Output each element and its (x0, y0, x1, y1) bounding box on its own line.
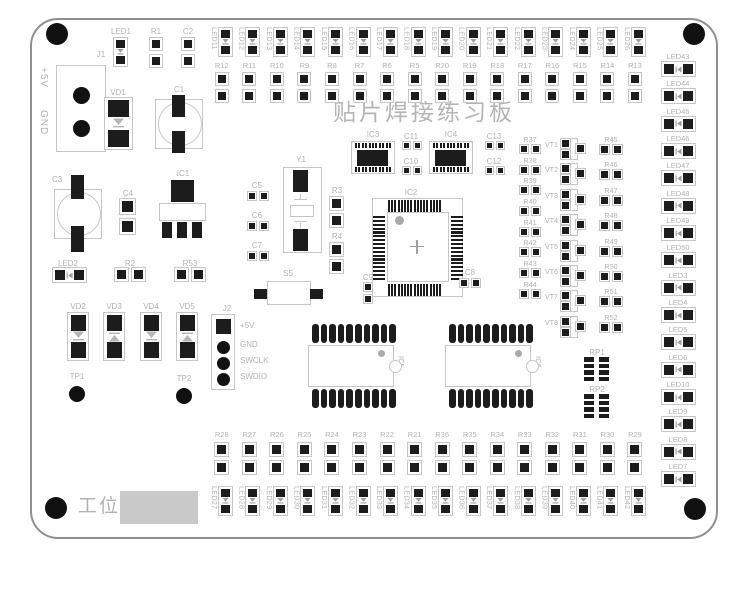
smd-pad (355, 445, 364, 454)
diode-cathode-icon (387, 498, 394, 504)
smd-pad (577, 272, 584, 279)
smd-pad (466, 92, 474, 100)
soic-pin (362, 167, 364, 172)
silk-label: LED44 (667, 80, 690, 88)
pad-outline (572, 460, 587, 475)
led-footprint (300, 486, 315, 516)
rp-pad (584, 370, 594, 375)
c10-footprint (402, 166, 422, 175)
diode-cathode-icon (675, 175, 682, 182)
qfp-pin (414, 284, 416, 296)
smd-pad (562, 303, 569, 310)
qfp-pin (451, 266, 463, 268)
led-unit: LED40 (569, 486, 591, 518)
pad-outline (519, 247, 529, 257)
silk-label-c5: C5 (252, 182, 262, 190)
led-unit: LED27 (211, 486, 233, 518)
sot23-footprint (560, 316, 587, 338)
silk-label-c4: C4 (123, 190, 133, 198)
pad-outline (496, 166, 505, 175)
smd-pad (533, 167, 539, 173)
passive-footprint (402, 141, 422, 150)
silk-label: LED32 (349, 486, 356, 518)
smd-pad (664, 146, 674, 156)
led-footprint (356, 27, 371, 57)
soic-pin (518, 324, 525, 343)
smd-pad (520, 463, 529, 472)
rp-pad (584, 357, 594, 362)
smd-pad (683, 283, 693, 293)
smd-pad (533, 187, 539, 193)
pad-outline (519, 165, 529, 175)
silk-label: LED30 (293, 486, 300, 518)
silk-label: R30 (601, 431, 615, 439)
diode-cathode-icon (304, 39, 311, 45)
pad-outline (519, 144, 529, 154)
qfp-pin (407, 200, 409, 212)
smd-pad (575, 445, 584, 454)
led-unit: LED19 (431, 27, 453, 59)
led-footprint (273, 486, 288, 516)
passive-footprint (628, 72, 642, 103)
smd-pad (614, 197, 621, 204)
passive-footprint (270, 72, 284, 103)
smd-pad (332, 245, 341, 254)
pad-outline (181, 54, 195, 68)
passive-footprint (490, 442, 505, 475)
smd-pad (365, 296, 371, 302)
smd-pad (466, 75, 474, 83)
silk-label: VT2 (541, 166, 560, 174)
soic-pin (389, 324, 396, 343)
pad-outline (214, 442, 229, 457)
mounting-hole-bottom-left (45, 497, 67, 519)
led-unit: LED37 (486, 486, 508, 518)
smd-pad (577, 323, 584, 330)
smd-pad (55, 270, 65, 280)
rp-pad (584, 407, 594, 412)
j1-pin-label-5v: +5V (38, 67, 48, 88)
soic-pin (492, 389, 499, 408)
passive-footprint (463, 72, 477, 103)
pad-outline (519, 185, 529, 195)
pad-outline (297, 460, 312, 475)
passive-footprint (599, 144, 623, 155)
smd-pad (276, 30, 285, 38)
passive-footprint (435, 72, 449, 103)
led-unit: LED41 (596, 486, 618, 518)
silk-label: LED13 (266, 27, 273, 59)
silk-label: R11 (243, 62, 256, 70)
smd-pad (579, 46, 588, 54)
soic-pin (458, 324, 465, 343)
smd-pad (614, 222, 621, 229)
qfp-pin (404, 200, 406, 212)
rp-pad (584, 414, 594, 419)
c11-footprint (402, 141, 422, 150)
led-unit: LED29 (266, 486, 288, 518)
smd-pad (383, 463, 392, 472)
qfp-pin (433, 284, 435, 296)
smd-pad (634, 46, 643, 54)
smd-pad (465, 463, 474, 472)
qfp-pin (398, 200, 400, 212)
pad-outline (573, 72, 587, 86)
pad-outline (560, 149, 571, 160)
diode-cathode-icon (525, 498, 532, 504)
qfp-pin (394, 284, 396, 296)
passive-footprint (517, 442, 532, 475)
diode-cathode-icon (277, 39, 284, 45)
smd-pad (493, 92, 501, 100)
smd-pad (245, 75, 253, 83)
pad-outline (174, 267, 189, 282)
strip-column: LED12R11 (236, 27, 264, 103)
pad-outline (612, 195, 623, 206)
pad-outline (575, 143, 586, 154)
silk-label: LED26 (624, 27, 631, 59)
passive-footprint (402, 166, 422, 175)
smd-pad (254, 289, 267, 299)
strip-column: R26LED29 (263, 431, 291, 518)
silk-label: R15 (573, 62, 587, 70)
silk-label: LED50 (667, 244, 690, 252)
qfp-pin (451, 239, 463, 241)
smd-pad (603, 445, 612, 454)
smd-pad (404, 168, 409, 173)
resistor-unit: R49 (593, 238, 629, 263)
qfp-pin (391, 200, 393, 212)
pad-outline (191, 267, 206, 282)
pad-outline (560, 265, 571, 276)
passive-footprint (519, 206, 541, 216)
c9-footprint (363, 282, 373, 304)
silk-label-c13: C13 (487, 133, 502, 141)
soic-pin (369, 167, 371, 172)
smd-pad (245, 92, 253, 100)
j2-pin-label-swdio: SWDIO (240, 373, 267, 381)
diode-cathode-icon (675, 284, 682, 291)
qfp-pin (451, 274, 463, 276)
silk-label-j1: J1 (97, 51, 105, 59)
pad-outline (599, 169, 610, 180)
smd-pad (438, 463, 447, 472)
rp-pad (599, 394, 609, 399)
diode-cathode-icon (675, 148, 682, 155)
qfp-pin (420, 200, 422, 212)
passive-footprint (247, 221, 269, 231)
strip-column: R21LED34 (401, 431, 429, 518)
silk-label-c12: C12 (487, 158, 502, 166)
silk-label: LED36 (459, 486, 466, 518)
smd-pad (359, 489, 368, 497)
strip-column: R34LED37 (483, 431, 511, 518)
pad-outline (560, 290, 571, 301)
smd-pad (331, 30, 340, 38)
smd-pad (664, 64, 674, 74)
passive-footprint (297, 442, 312, 475)
silk-label: R43 (523, 260, 536, 268)
smd-pad (332, 262, 341, 271)
strip-column: R23LED32 (346, 431, 374, 518)
smd-pad (414, 489, 423, 497)
smd-pad (606, 30, 615, 38)
smd-pad (300, 92, 308, 100)
led-footprint (576, 486, 591, 516)
smd-pad (548, 75, 556, 83)
pad-outline (413, 141, 422, 150)
silk-label: LED29 (266, 486, 273, 518)
qfp-pin (451, 262, 463, 264)
pad-outline (119, 198, 136, 215)
smd-pad (683, 119, 693, 129)
smd-pad (248, 46, 257, 54)
pad-outline (435, 72, 449, 86)
diode-cathode-icon (675, 230, 682, 237)
c2-footprint (181, 37, 195, 68)
smd-pad (473, 280, 479, 286)
qfp-pin (451, 251, 463, 253)
smd-pad (217, 445, 226, 454)
led-unit: LED13 (266, 27, 288, 59)
pad-outline (518, 72, 532, 86)
transistor-unit: VT2 (541, 163, 587, 188)
ic5-soic-footprint (306, 323, 406, 413)
led-unit: LED9 (654, 408, 702, 435)
led-footprint (218, 486, 233, 516)
soic-pin (464, 143, 466, 148)
silk-label: LED41 (596, 486, 603, 518)
qfp-pin (430, 284, 432, 296)
qfp-pin (373, 247, 385, 249)
silk-label-c3: C3 (52, 176, 62, 184)
smd-pad (631, 92, 639, 100)
pad-outline (408, 89, 422, 103)
silk-label-c8: C8 (465, 269, 475, 277)
led-footprint (548, 486, 563, 516)
soic-pin (443, 143, 445, 148)
smd-pad (162, 222, 172, 238)
silk-label-vd2: VD2 (70, 303, 86, 311)
smd-pad (601, 222, 608, 229)
smd-pad (634, 489, 643, 497)
strip-column: LED14R9 (291, 27, 319, 103)
smd-pad (551, 46, 560, 54)
silk-label-ic2: IC2 (405, 189, 417, 197)
mounting-hole-top-left (46, 23, 68, 45)
soic-pin (433, 167, 435, 172)
led-footprint (356, 486, 371, 516)
strip-column: R29LED42 (621, 431, 649, 518)
diode-cathode-icon (675, 476, 682, 483)
led1-footprint (113, 37, 128, 67)
passive-footprint (519, 247, 541, 257)
smd-pad (614, 146, 621, 153)
smd-pad (683, 310, 693, 320)
smd-pad (356, 75, 364, 83)
pad-outline (531, 185, 541, 195)
strip-column: LED18R5 (401, 27, 429, 103)
smd-pad (327, 463, 336, 472)
led-unit: LED6 (654, 354, 702, 381)
pad-outline (119, 218, 136, 235)
smd-pad (603, 92, 611, 100)
soic-pin (449, 324, 456, 343)
silk-label: R41 (523, 219, 536, 227)
smd-pad (359, 505, 368, 513)
led-unit: LED33 (376, 486, 398, 518)
diode-cathode-icon (222, 498, 229, 504)
pad-outline (325, 89, 339, 103)
diode-cathode-icon (249, 39, 256, 45)
passive-footprint (114, 267, 146, 282)
led-footprint (603, 27, 618, 57)
silk-label-led1: LED1 (111, 28, 131, 36)
smd-pad (71, 226, 84, 252)
j2-pin-gnd-pad (217, 341, 230, 354)
pad-outline (575, 168, 586, 179)
pad-outline (380, 89, 394, 103)
silk-label: LED45 (667, 108, 690, 116)
silk-label: R17 (518, 62, 532, 70)
diode-cathode-icon (525, 39, 532, 45)
strip-column: R33LED38 (511, 431, 539, 518)
smd-pad (184, 40, 192, 48)
qfp-pin (388, 200, 390, 212)
strip-column: R32LED39 (539, 431, 567, 518)
diode-cathode-icon (387, 39, 394, 45)
j2-pin-label-gnd: GND (240, 341, 258, 349)
j1-pin-hole (73, 87, 90, 104)
smd-pad (327, 445, 336, 454)
diode-cathode-icon (72, 331, 85, 342)
pad-outline (352, 460, 367, 475)
mounting-hole-bottom-right (684, 498, 706, 520)
pad-outline (435, 460, 450, 475)
strip-column: LED11R12 (208, 27, 236, 103)
pad-outline (149, 54, 163, 68)
diode-cathode-icon (675, 312, 682, 319)
smd-pad (410, 445, 419, 454)
led-footprint (661, 198, 696, 214)
soic-pin (375, 167, 377, 172)
led-footprint (466, 27, 481, 57)
smd-pad (411, 92, 419, 100)
c12-footprint (485, 166, 505, 175)
pad-outline (560, 327, 571, 338)
smd-pad (562, 151, 569, 158)
strip-column: R31LED40 (566, 431, 594, 518)
silk-label: R39 (523, 177, 536, 185)
silk-label: R6 (382, 62, 392, 70)
silk-label: LED16 (349, 27, 356, 59)
pad-outline (149, 37, 163, 51)
silk-label: LED24 (569, 27, 576, 59)
silk-label: VT7 (541, 293, 560, 301)
smd-pad (521, 92, 529, 100)
smd-pad (562, 267, 569, 274)
smd-pad (524, 46, 533, 54)
smd-pad (683, 474, 693, 484)
smd-pad (180, 342, 195, 358)
pad-outline (560, 276, 571, 287)
silk-label-tp1: TP1 (70, 373, 85, 381)
diode-cathode-icon (112, 118, 125, 129)
silk-label-rp1: RP1 (589, 349, 605, 357)
silk-label: R14 (601, 62, 615, 70)
led-footprint (661, 252, 696, 268)
silk-label: R27 (242, 431, 256, 439)
smd-pad (601, 171, 608, 178)
soic-pin (346, 324, 353, 343)
pad-outline (560, 251, 571, 262)
silk-label-r4: R4 (332, 233, 342, 241)
smd-pad (614, 248, 621, 255)
smd-pad (630, 463, 639, 472)
pad-outline (131, 267, 146, 282)
silk-label: VT3 (541, 192, 560, 200)
qfp-pin (451, 235, 463, 237)
smd-pad (496, 489, 505, 497)
smd-pad (414, 46, 423, 54)
smd-pad (548, 92, 556, 100)
pad-outline (599, 296, 610, 307)
led-footprint (661, 143, 696, 159)
smd-pad (273, 92, 281, 100)
transistor-unit: VT6 (541, 265, 587, 290)
smd-pad (248, 30, 257, 38)
smd-pad (606, 489, 615, 497)
silk-label: R23 (353, 431, 367, 439)
smd-pad (601, 298, 608, 305)
smd-pad (601, 248, 608, 255)
soic-pin (450, 143, 452, 148)
qfp-pin (410, 200, 412, 212)
qfp-pin (417, 284, 419, 296)
soic-pin1-dot-icon (515, 350, 522, 357)
led-unit: LED28 (238, 486, 260, 518)
smd-pad (218, 92, 226, 100)
pad-outline (545, 460, 560, 475)
smd-pad (577, 221, 584, 228)
passive-footprint (519, 227, 541, 237)
smd-pad (601, 146, 608, 153)
smd-pad (332, 199, 341, 208)
smd-pad (441, 30, 450, 38)
qfp-pin (417, 200, 419, 212)
smd-pad (521, 208, 527, 214)
silk-label: LED19 (431, 27, 438, 59)
smd-pad (524, 489, 533, 497)
ic6-soic-footprint (443, 323, 543, 413)
led-unit: LED15 (321, 27, 343, 59)
smd-pad (172, 95, 185, 117)
smd-pad (441, 46, 450, 54)
passive-footprint (297, 72, 311, 103)
passive-footprint (600, 442, 615, 475)
smd-pad (577, 145, 584, 152)
smd-pad (117, 270, 126, 279)
strip-column: LED16R7 (346, 27, 374, 103)
passive-footprint (599, 246, 623, 257)
soic-pin (346, 389, 353, 408)
smd-pad (122, 221, 133, 232)
pad-outline (531, 227, 541, 237)
resistor-unit: R45 (593, 136, 629, 161)
pad-outline (380, 460, 395, 475)
silk-label: R33 (518, 431, 532, 439)
pad-outline (247, 251, 257, 261)
